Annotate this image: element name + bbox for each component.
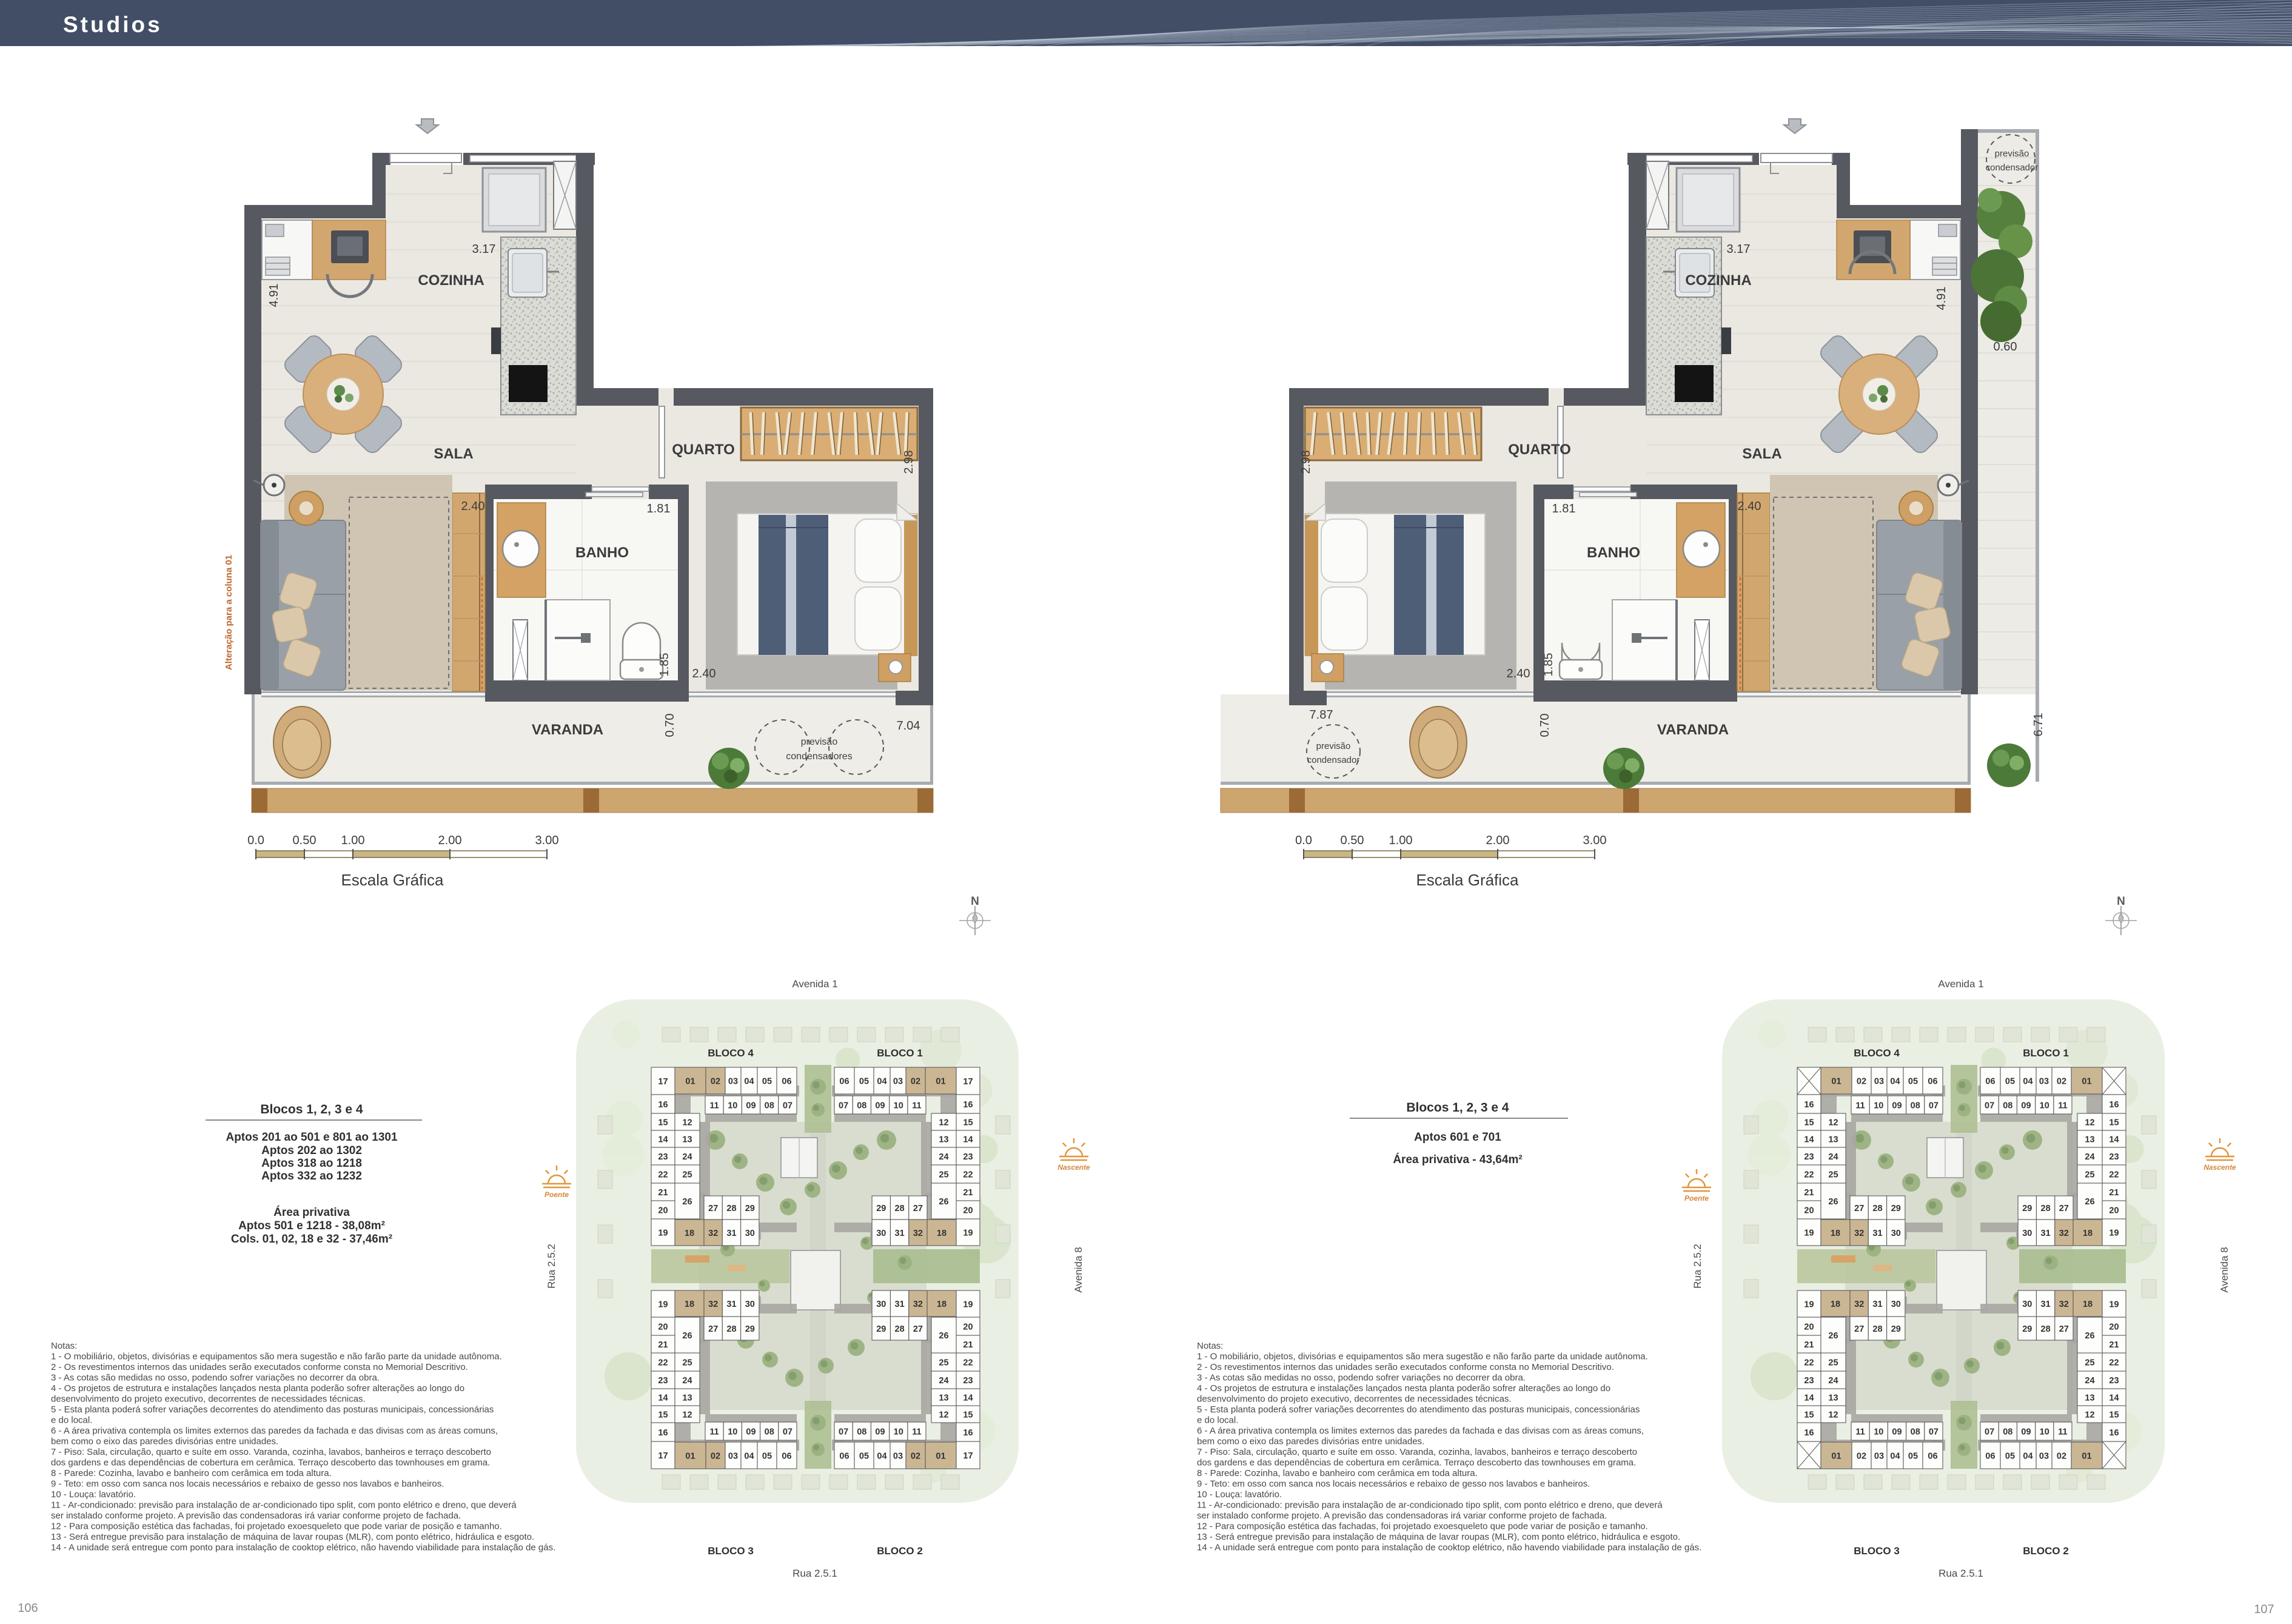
svg-text:7.04: 7.04 <box>897 719 920 733</box>
svg-text:15: 15 <box>658 1118 668 1128</box>
svg-text:Área privativa: Área privativa <box>273 1206 350 1219</box>
svg-text:3 - As cotas são medidas no os: 3 - As cotas são medidas no osso, podend… <box>1197 1373 1526 1383</box>
svg-text:BLOCO 1: BLOCO 1 <box>877 1047 923 1059</box>
svg-text:19: 19 <box>1804 1300 1814 1310</box>
svg-text:26: 26 <box>682 1197 692 1207</box>
svg-text:1.81: 1.81 <box>1552 502 1576 515</box>
svg-text:27: 27 <box>708 1324 718 1334</box>
svg-text:24: 24 <box>939 1376 948 1386</box>
svg-text:28: 28 <box>1872 1204 1882 1213</box>
svg-text:8 - Parede: Cozinha, lavabo e: 8 - Parede: Cozinha, lavabo e banheiro c… <box>1197 1468 1478 1478</box>
svg-text:30: 30 <box>1891 1229 1901 1238</box>
svg-text:20: 20 <box>658 1323 668 1332</box>
svg-text:12: 12 <box>939 1411 948 1420</box>
svg-text:32: 32 <box>708 1300 718 1309</box>
svg-text:08: 08 <box>765 1428 774 1437</box>
svg-text:Aptos 601 e 701: Aptos 601 e 701 <box>1414 1131 1501 1144</box>
svg-text:BLOCO 4: BLOCO 4 <box>1854 1047 1900 1059</box>
svg-text:22: 22 <box>2109 1170 2119 1180</box>
svg-text:15: 15 <box>2109 1411 2119 1420</box>
svg-text:16: 16 <box>963 1100 973 1110</box>
svg-text:05: 05 <box>859 1077 869 1087</box>
svg-text:09: 09 <box>2021 1101 2031 1111</box>
svg-text:13: 13 <box>939 1394 948 1403</box>
svg-text:29: 29 <box>745 1324 755 1334</box>
svg-text:SALA: SALA <box>434 446 473 462</box>
svg-text:1.85: 1.85 <box>1542 653 1555 677</box>
svg-text:26: 26 <box>2085 1331 2094 1341</box>
svg-text:Notas:: Notas: <box>51 1341 77 1351</box>
svg-text:14: 14 <box>1804 1394 1814 1403</box>
svg-text:32: 32 <box>2059 1300 2069 1309</box>
svg-text:BLOCO 2: BLOCO 2 <box>877 1545 923 1557</box>
svg-text:12 - Para composição estética: 12 - Para composição estética das fachad… <box>1197 1522 1648 1532</box>
svg-text:22: 22 <box>963 1358 973 1368</box>
svg-text:09: 09 <box>2021 1428 2031 1437</box>
svg-text:BLOCO 3: BLOCO 3 <box>1854 1545 1900 1557</box>
svg-text:01: 01 <box>2082 1077 2091 1087</box>
svg-text:Poente: Poente <box>545 1190 569 1199</box>
svg-text:21: 21 <box>963 1340 973 1350</box>
svg-text:04: 04 <box>744 1452 754 1461</box>
svg-text:15: 15 <box>658 1411 668 1420</box>
svg-text:SALA: SALA <box>1742 446 1781 462</box>
svg-text:04: 04 <box>877 1452 886 1461</box>
svg-text:1.81: 1.81 <box>647 502 671 515</box>
svg-text:28: 28 <box>1872 1324 1882 1334</box>
svg-text:04: 04 <box>877 1077 886 1087</box>
svg-text:05: 05 <box>762 1452 772 1461</box>
svg-text:13: 13 <box>1828 1394 1838 1403</box>
svg-text:29: 29 <box>876 1324 886 1334</box>
svg-text:08: 08 <box>1911 1101 1920 1111</box>
svg-text:15: 15 <box>963 1118 973 1128</box>
svg-text:27: 27 <box>2059 1204 2069 1213</box>
svg-text:20: 20 <box>2109 1206 2119 1216</box>
svg-text:06: 06 <box>782 1452 791 1461</box>
svg-text:16: 16 <box>658 1100 668 1110</box>
svg-text:14: 14 <box>963 1394 973 1403</box>
svg-text:28: 28 <box>2041 1324 2051 1334</box>
svg-text:11: 11 <box>709 1428 719 1437</box>
svg-text:11: 11 <box>1855 1428 1865 1437</box>
svg-text:6.71: 6.71 <box>2032 713 2045 737</box>
svg-text:condensadores: condensadores <box>786 751 852 762</box>
svg-text:11: 11 <box>912 1101 921 1111</box>
svg-text:06: 06 <box>1928 1077 1937 1087</box>
svg-text:03: 03 <box>2039 1077 2049 1087</box>
svg-text:02: 02 <box>711 1452 720 1461</box>
svg-text:32: 32 <box>913 1229 923 1238</box>
svg-text:2.98: 2.98 <box>902 451 916 474</box>
svg-text:14 - A unidade será entregue c: 14 - A unidade será entregue com ponto p… <box>1197 1543 1701 1553</box>
svg-text:Avenida 8: Avenida 8 <box>2219 1247 2230 1292</box>
svg-text:30: 30 <box>745 1300 755 1309</box>
svg-text:14: 14 <box>1804 1135 1814 1145</box>
svg-text:05: 05 <box>859 1452 869 1461</box>
svg-text:2.98: 2.98 <box>1299 451 1313 474</box>
svg-text:ser instalado conforme projeto: ser instalado conforme projeto. A previs… <box>1197 1511 1607 1521</box>
svg-text:dos gardens e das dependências: dos gardens e das dependências de cobert… <box>1197 1458 1636 1468</box>
svg-text:11: 11 <box>1855 1101 1865 1111</box>
svg-text:4 - Os projetos de estrutura e: 4 - Os projetos de estrutura e instalaçõ… <box>1197 1383 1610 1394</box>
svg-text:28: 28 <box>895 1204 905 1213</box>
svg-text:12: 12 <box>2085 1118 2094 1128</box>
svg-text:10 - Louça: lavatório.: 10 - Louça: lavatório. <box>51 1489 136 1500</box>
svg-text:condensador: condensador <box>1307 755 1360 765</box>
svg-text:25: 25 <box>939 1170 948 1180</box>
svg-text:01: 01 <box>936 1077 945 1087</box>
svg-text:31: 31 <box>2041 1300 2051 1309</box>
svg-text:01: 01 <box>685 1452 695 1461</box>
svg-text:e do local.: e do local. <box>51 1415 92 1426</box>
svg-text:16: 16 <box>2109 1428 2119 1438</box>
svg-text:VARANDA: VARANDA <box>1657 722 1729 738</box>
svg-text:27: 27 <box>1854 1204 1864 1213</box>
svg-text:17: 17 <box>963 1077 973 1087</box>
svg-text:10: 10 <box>894 1101 903 1111</box>
svg-text:28: 28 <box>726 1204 736 1213</box>
svg-text:32: 32 <box>2059 1229 2069 1238</box>
svg-text:0.60: 0.60 <box>1994 340 2017 354</box>
svg-text:1.85: 1.85 <box>658 653 671 677</box>
svg-text:30: 30 <box>876 1229 886 1238</box>
svg-text:02: 02 <box>1857 1077 1866 1087</box>
svg-text:31: 31 <box>895 1229 905 1238</box>
svg-text:Blocos 1, 2, 3 e 4: Blocos 1, 2, 3 e 4 <box>1406 1101 1509 1115</box>
svg-text:01: 01 <box>936 1452 945 1461</box>
svg-text:15: 15 <box>1804 1411 1814 1420</box>
svg-text:31: 31 <box>726 1229 736 1238</box>
svg-text:condensador: condensador <box>1986 163 2039 173</box>
svg-text:COZINHA: COZINHA <box>418 272 484 289</box>
svg-text:21: 21 <box>963 1188 973 1198</box>
svg-text:13: 13 <box>939 1135 948 1145</box>
svg-text:2.40: 2.40 <box>1738 500 1761 513</box>
svg-text:07: 07 <box>1985 1428 1994 1437</box>
svg-text:13 - Será entregue previsão pa: 13 - Será entregue previsão para instala… <box>51 1532 534 1542</box>
svg-text:21: 21 <box>658 1188 668 1198</box>
svg-text:29: 29 <box>1891 1324 1901 1334</box>
svg-text:22: 22 <box>2109 1358 2119 1368</box>
svg-text:09: 09 <box>1892 1428 1902 1437</box>
svg-text:03: 03 <box>1874 1452 1884 1461</box>
svg-text:25: 25 <box>939 1358 948 1368</box>
svg-text:17: 17 <box>658 1451 668 1461</box>
svg-text:04: 04 <box>744 1077 754 1087</box>
svg-text:11: 11 <box>912 1428 921 1437</box>
svg-text:Avenida 1: Avenida 1 <box>1938 978 1983 990</box>
svg-text:28: 28 <box>726 1324 736 1334</box>
svg-text:03: 03 <box>893 1452 903 1461</box>
svg-text:29: 29 <box>2022 1324 2032 1334</box>
svg-text:COZINHA: COZINHA <box>1685 272 1751 289</box>
svg-text:14: 14 <box>658 1394 668 1403</box>
svg-text:29: 29 <box>876 1204 886 1213</box>
svg-text:04: 04 <box>2023 1077 2032 1087</box>
svg-text:24: 24 <box>682 1376 692 1386</box>
svg-text:13 - Será entregue previsão pa: 13 - Será entregue previsão para instala… <box>1197 1532 1680 1542</box>
svg-text:29: 29 <box>2022 1204 2032 1213</box>
svg-text:19: 19 <box>658 1300 668 1310</box>
svg-text:2 - Os revestimentos internos: 2 - Os revestimentos internos das unidad… <box>51 1362 468 1372</box>
svg-text:26: 26 <box>2085 1197 2094 1207</box>
svg-text:13: 13 <box>1828 1135 1838 1145</box>
svg-text:N: N <box>971 895 979 908</box>
svg-text:BLOCO 4: BLOCO 4 <box>708 1047 754 1059</box>
svg-text:2.40: 2.40 <box>692 667 716 680</box>
svg-text:20: 20 <box>963 1206 973 1216</box>
svg-text:106: 106 <box>18 1602 38 1615</box>
svg-text:21: 21 <box>2109 1188 2119 1198</box>
svg-text:23: 23 <box>658 1152 668 1162</box>
svg-text:05: 05 <box>2005 1077 2015 1087</box>
svg-text:BLOCO 1: BLOCO 1 <box>2023 1047 2069 1059</box>
svg-text:29: 29 <box>1891 1204 1901 1213</box>
svg-text:05: 05 <box>1908 1077 1918 1087</box>
svg-text:Nascente: Nascente <box>1057 1163 1090 1172</box>
svg-text:ser instalado conforme projeto: ser instalado conforme projeto. A previs… <box>51 1511 461 1521</box>
svg-text:12: 12 <box>2085 1411 2094 1420</box>
svg-text:Blocos 1, 2, 3 e 4: Blocos 1, 2, 3 e 4 <box>260 1102 363 1116</box>
svg-text:30: 30 <box>745 1229 755 1238</box>
svg-text:12: 12 <box>1828 1411 1838 1420</box>
svg-text:Escala Gráfica: Escala Gráfica <box>341 871 444 889</box>
svg-text:22: 22 <box>963 1170 973 1180</box>
svg-text:3.17: 3.17 <box>1727 243 1751 256</box>
svg-text:31: 31 <box>1872 1229 1882 1238</box>
svg-text:16: 16 <box>1804 1100 1814 1110</box>
svg-text:25: 25 <box>2085 1170 2094 1180</box>
svg-text:02: 02 <box>911 1452 920 1461</box>
svg-text:18: 18 <box>1831 1229 1840 1238</box>
svg-text:26: 26 <box>1828 1331 1838 1341</box>
svg-text:18: 18 <box>685 1300 694 1309</box>
svg-text:09: 09 <box>875 1101 885 1111</box>
svg-text:3.00: 3.00 <box>535 834 559 847</box>
svg-text:Avenida 1: Avenida 1 <box>792 978 837 990</box>
svg-text:25: 25 <box>2085 1358 2094 1368</box>
svg-text:desenvolvimento do projeto exe: desenvolvimento do projeto executivo, de… <box>51 1394 366 1404</box>
svg-text:11 - Ar-condicionado: previsão: 11 - Ar-condicionado: previsão para inst… <box>51 1500 517 1511</box>
svg-text:Aptos 201 ao 501 e 801 ao 1301: Aptos 201 ao 501 e 801 ao 1301 <box>226 1131 397 1144</box>
svg-text:10 - Louça: lavatório.: 10 - Louça: lavatório. <box>1197 1489 1282 1500</box>
svg-text:Poente: Poente <box>1684 1194 1709 1203</box>
svg-text:02: 02 <box>911 1077 920 1087</box>
svg-text:01: 01 <box>1831 1077 1841 1087</box>
svg-text:18: 18 <box>2083 1300 2093 1309</box>
svg-text:previsão: previsão <box>801 737 838 747</box>
svg-text:11 - Ar-condicionado: previsão: 11 - Ar-condicionado: previsão para inst… <box>1197 1500 1663 1511</box>
svg-text:27: 27 <box>708 1204 718 1213</box>
svg-text:15: 15 <box>963 1411 973 1420</box>
svg-text:24: 24 <box>2085 1152 2094 1162</box>
svg-text:02: 02 <box>711 1077 720 1087</box>
svg-text:4.91: 4.91 <box>267 284 281 307</box>
svg-text:09: 09 <box>1892 1101 1902 1111</box>
svg-text:03: 03 <box>728 1077 738 1087</box>
svg-text:QUARTO: QUARTO <box>672 441 735 458</box>
svg-text:0.0: 0.0 <box>247 834 264 847</box>
svg-text:08: 08 <box>1911 1428 1920 1437</box>
svg-text:27: 27 <box>1854 1324 1864 1334</box>
svg-text:32: 32 <box>708 1229 718 1238</box>
svg-text:10: 10 <box>1874 1428 1883 1437</box>
svg-text:19: 19 <box>963 1300 973 1310</box>
svg-text:13: 13 <box>682 1135 692 1145</box>
svg-text:32: 32 <box>1854 1300 1864 1309</box>
svg-text:14: 14 <box>2109 1394 2119 1403</box>
svg-text:30: 30 <box>1891 1300 1901 1309</box>
svg-text:1 - O mobiliário, objetos, div: 1 - O mobiliário, objetos, divisórias e … <box>1197 1352 1648 1362</box>
svg-text:31: 31 <box>726 1300 736 1309</box>
svg-text:19: 19 <box>2109 1229 2119 1238</box>
svg-text:19: 19 <box>963 1229 973 1238</box>
svg-text:Avenida 8: Avenida 8 <box>1073 1247 1084 1292</box>
svg-text:25: 25 <box>682 1358 692 1368</box>
svg-text:4.91: 4.91 <box>1935 287 1948 310</box>
svg-text:2.40: 2.40 <box>1507 667 1530 680</box>
svg-text:31: 31 <box>895 1300 905 1309</box>
svg-text:12: 12 <box>682 1411 692 1420</box>
svg-text:Rua 2.5.2: Rua 2.5.2 <box>1692 1244 1703 1289</box>
svg-text:BLOCO 3: BLOCO 3 <box>708 1545 754 1557</box>
svg-text:09: 09 <box>875 1428 885 1437</box>
svg-text:2.00: 2.00 <box>1486 834 1510 847</box>
svg-text:31: 31 <box>2041 1229 2051 1238</box>
svg-text:07: 07 <box>839 1101 848 1111</box>
svg-text:desenvolvimento do projeto exe: desenvolvimento do projeto executivo, de… <box>1197 1394 1512 1404</box>
svg-text:24: 24 <box>682 1152 692 1162</box>
svg-text:08: 08 <box>2003 1428 2012 1437</box>
svg-text:BANHO: BANHO <box>1587 545 1640 561</box>
svg-text:21: 21 <box>1804 1340 1814 1350</box>
svg-text:07: 07 <box>1929 1428 1938 1437</box>
svg-text:2 - Os revestimentos internos: 2 - Os revestimentos internos das unidad… <box>1197 1362 1614 1372</box>
svg-text:Área privativa - 43,64m²: Área privativa - 43,64m² <box>1393 1153 1522 1166</box>
svg-text:08: 08 <box>2003 1101 2012 1111</box>
svg-text:12: 12 <box>939 1118 948 1128</box>
svg-text:24: 24 <box>939 1152 948 1162</box>
svg-text:14: 14 <box>658 1135 668 1145</box>
svg-text:Aptos 318 ao 1218: Aptos 318 ao 1218 <box>261 1157 362 1170</box>
svg-text:18: 18 <box>937 1229 947 1238</box>
svg-text:10: 10 <box>728 1428 737 1437</box>
svg-text:22: 22 <box>658 1358 668 1368</box>
svg-text:3 - As cotas são medidas no os: 3 - As cotas são medidas no osso, podend… <box>51 1373 380 1383</box>
svg-text:BLOCO 2: BLOCO 2 <box>2023 1545 2069 1557</box>
svg-text:26: 26 <box>1828 1197 1838 1207</box>
svg-text:05: 05 <box>762 1077 772 1087</box>
svg-text:30: 30 <box>2022 1300 2032 1309</box>
svg-text:7.87: 7.87 <box>1310 708 1333 722</box>
svg-text:11: 11 <box>2058 1101 2067 1111</box>
svg-text:23: 23 <box>1804 1376 1814 1386</box>
svg-text:bem como o eixo das paredes di: bem como o eixo das paredes divisórias e… <box>1197 1437 1424 1447</box>
svg-text:01: 01 <box>2082 1452 2091 1461</box>
svg-text:3.00: 3.00 <box>1583 834 1607 847</box>
svg-text:107: 107 <box>2254 1603 2274 1616</box>
svg-text:0.50: 0.50 <box>1341 834 1364 847</box>
svg-text:1.00: 1.00 <box>1389 834 1413 847</box>
svg-text:9 - Teto: em osso com sanca no: 9 - Teto: em osso com sanca nos locais n… <box>1197 1479 1590 1489</box>
svg-text:09: 09 <box>746 1101 756 1111</box>
svg-text:02: 02 <box>1857 1452 1866 1461</box>
svg-text:20: 20 <box>2109 1323 2119 1332</box>
svg-text:14: 14 <box>963 1135 973 1145</box>
svg-text:26: 26 <box>682 1331 692 1341</box>
svg-text:28: 28 <box>2041 1204 2051 1213</box>
svg-text:20: 20 <box>963 1323 973 1332</box>
svg-text:06: 06 <box>839 1452 849 1461</box>
svg-text:27: 27 <box>2059 1324 2069 1334</box>
svg-text:07: 07 <box>1985 1101 1994 1111</box>
svg-text:05: 05 <box>1908 1452 1918 1461</box>
svg-text:Rua 2.5.1: Rua 2.5.1 <box>1938 1568 1983 1579</box>
svg-text:13: 13 <box>2085 1135 2094 1145</box>
svg-text:7 - Piso: Sala, circulação, qu: 7 - Piso: Sala, circulação, quarto e suí… <box>1197 1447 1637 1457</box>
svg-text:11: 11 <box>2058 1428 2067 1437</box>
svg-text:20: 20 <box>1804 1206 1814 1216</box>
svg-text:23: 23 <box>1804 1152 1814 1162</box>
svg-text:20: 20 <box>658 1206 668 1216</box>
svg-text:6 - A área privativa contempla: 6 - A área privativa contempla os limite… <box>51 1426 498 1436</box>
svg-text:9 - Teto: em osso com sanca no: 9 - Teto: em osso com sanca nos locais n… <box>51 1479 444 1489</box>
svg-text:0.70: 0.70 <box>1538 714 1552 737</box>
svg-text:27: 27 <box>913 1324 923 1334</box>
svg-text:0.70: 0.70 <box>663 714 677 737</box>
svg-text:Aptos 202 ao 1302: Aptos 202 ao 1302 <box>261 1144 362 1157</box>
svg-text:08: 08 <box>857 1428 866 1437</box>
svg-text:1.00: 1.00 <box>341 834 365 847</box>
svg-text:Cols. 01, 02, 18 e 32 - 37,46m: Cols. 01, 02, 18 e 32 - 37,46m² <box>231 1233 392 1246</box>
svg-text:13: 13 <box>682 1394 692 1403</box>
svg-text:18: 18 <box>2083 1229 2093 1238</box>
svg-text:30: 30 <box>876 1300 886 1309</box>
svg-text:07: 07 <box>1929 1101 1938 1111</box>
svg-text:20: 20 <box>1804 1323 1814 1332</box>
svg-text:10: 10 <box>1874 1101 1883 1111</box>
svg-text:03: 03 <box>728 1452 738 1461</box>
svg-text:4 - Os projetos de estrutura e: 4 - Os projetos de estrutura e instalaçõ… <box>51 1383 464 1394</box>
svg-text:03: 03 <box>893 1077 903 1087</box>
svg-text:16: 16 <box>2109 1100 2119 1110</box>
svg-text:8 - Parede: Cozinha, lavabo e: 8 - Parede: Cozinha, lavabo e banheiro c… <box>51 1468 332 1478</box>
svg-text:22: 22 <box>1804 1358 1814 1368</box>
svg-text:VARANDA: VARANDA <box>532 722 603 738</box>
svg-text:16: 16 <box>1804 1428 1814 1438</box>
svg-text:e do local.: e do local. <box>1197 1415 1238 1426</box>
svg-text:02: 02 <box>2057 1077 2066 1087</box>
svg-text:Notas:: Notas: <box>1197 1341 1223 1351</box>
svg-text:13: 13 <box>2085 1394 2094 1403</box>
svg-text:3.17: 3.17 <box>472 243 496 256</box>
svg-text:16: 16 <box>963 1428 973 1438</box>
svg-text:05: 05 <box>2005 1452 2015 1461</box>
svg-text:12: 12 <box>1828 1118 1838 1128</box>
svg-text:19: 19 <box>1804 1229 1814 1238</box>
svg-text:27: 27 <box>913 1204 923 1213</box>
svg-text:14: 14 <box>2109 1135 2119 1145</box>
svg-text:06: 06 <box>1985 1452 1995 1461</box>
svg-text:32: 32 <box>1854 1229 1864 1238</box>
svg-text:19: 19 <box>658 1229 668 1238</box>
svg-text:23: 23 <box>2109 1152 2119 1162</box>
svg-text:06: 06 <box>782 1077 791 1087</box>
svg-text:12 - Para composição estética: 12 - Para composição estética das fachad… <box>51 1522 502 1532</box>
svg-text:02: 02 <box>2057 1452 2066 1461</box>
svg-text:10: 10 <box>894 1428 903 1437</box>
